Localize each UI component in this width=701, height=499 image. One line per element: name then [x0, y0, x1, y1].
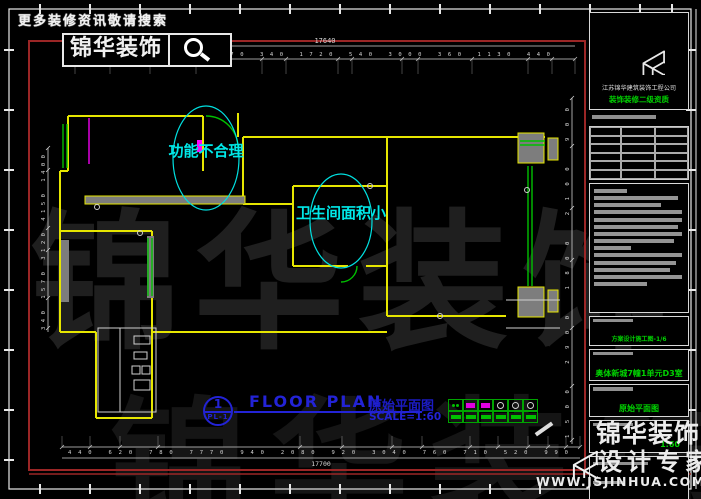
top-total-dim: 17640 — [314, 37, 335, 45]
title-block-label-bar — [589, 113, 689, 123]
legend-symbol — [523, 411, 538, 423]
brand-logo-text: 锦华装饰 — [64, 35, 170, 65]
magnifier-handle — [200, 52, 210, 61]
company-grade: 装饰装修二级资质 — [590, 94, 688, 105]
footer-site-url: WWW.JSJINHUA.COM — [536, 474, 701, 489]
detail-bubble: 1 PL-1 — [203, 396, 233, 426]
legend-symbol — [478, 411, 493, 423]
legend-symbol — [448, 411, 463, 423]
bottom-total-dim: 17700 — [311, 460, 331, 468]
right-chain-dims: 1500 2900 1800 2100 900 — [565, 108, 571, 438]
company-logo-box: 江苏锦华建筑装饰工程公司 装饰装修二级资质 — [589, 12, 689, 110]
legend-symbol — [463, 399, 478, 411]
legend-symbol — [448, 399, 463, 411]
footer-watermark: 锦华装饰 设计专家 WWW.JSJINHUA.COM — [540, 414, 700, 496]
magnifier-icon — [170, 35, 230, 65]
left-chain-dims: 340 1570 3120 4150 1400 — [41, 155, 47, 330]
drawing-name-cell: 原始平面图 — [589, 384, 689, 417]
drawing-title-en: FLOOR PLAN — [249, 392, 382, 411]
legend-symbol — [523, 399, 538, 411]
project-address-cell: 奥体新城7幢1单元D3室 — [589, 349, 689, 382]
legend-symbol — [493, 411, 508, 423]
footer-cube-logo — [540, 416, 598, 478]
footer-tagline: 设计专家 — [598, 442, 701, 477]
bottom-chain-dims: 440 620 780 7770 940 2080 920 3040 760 7… — [68, 450, 568, 456]
legend-symbol — [508, 411, 523, 423]
project-number: 方案设计施工图-1/6 — [590, 336, 688, 343]
legend-symbol — [508, 399, 523, 411]
plan-walls — [60, 113, 545, 418]
electrical-legend-table — [448, 399, 538, 423]
detail-number: 1 — [205, 398, 231, 413]
annotation-bathroom: 卫生间面积小 — [296, 204, 386, 222]
drawing-name: 原始平面图 — [590, 404, 688, 414]
legend-symbol — [493, 399, 508, 411]
legend-symbol — [463, 411, 478, 423]
revision-table — [589, 126, 689, 180]
project-number-cell: 方案设计施工图-1/6 — [589, 316, 689, 346]
sheet-code: PL-1 — [205, 413, 231, 422]
project-address: 奥体新城7幢1单元D3室 — [590, 369, 688, 379]
company-cube-logo — [613, 19, 665, 75]
annotation-function: 功能不合理 — [168, 142, 243, 160]
company-name: 江苏锦华建筑装饰工程公司 — [592, 82, 685, 92]
brand-search-box[interactable]: 锦华装饰 — [62, 33, 232, 67]
search-header: 更多装修资讯敬请搜索 锦华装饰 — [18, 10, 232, 67]
drawing-scale: SCALE=1:60 — [369, 411, 441, 423]
cad-screenshot: 锦华装饰 锦华装饰 — [0, 0, 701, 499]
legend-symbol — [478, 399, 493, 411]
search-hint-text: 更多装修资讯敬请搜索 — [18, 10, 232, 29]
notes-box — [589, 183, 689, 313]
